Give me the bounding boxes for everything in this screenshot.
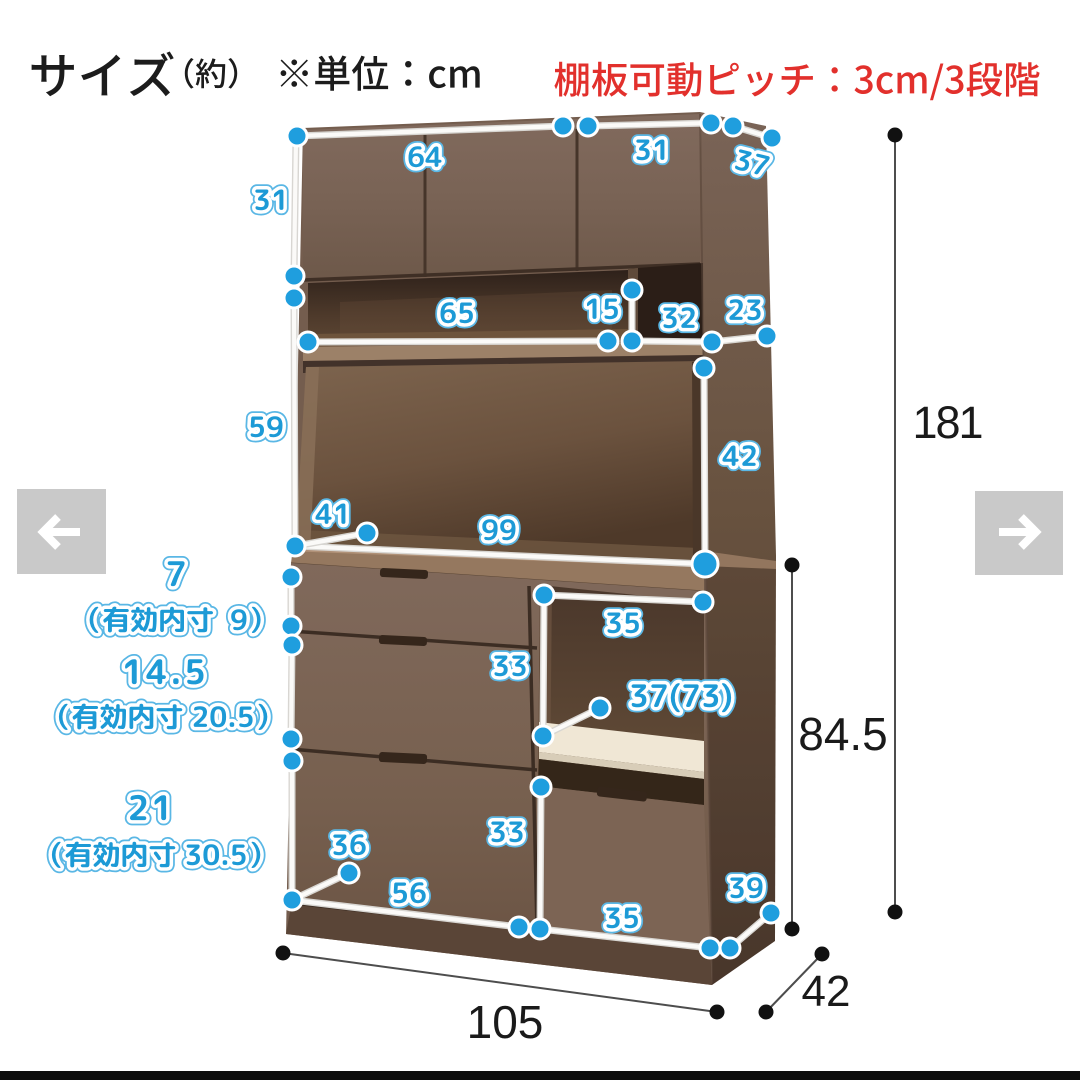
svg-text:84.5: 84.5 (798, 708, 888, 760)
svg-text:181: 181 (912, 397, 981, 448)
svg-text:42: 42 (802, 967, 851, 1016)
svg-text:105: 105 (467, 996, 544, 1048)
